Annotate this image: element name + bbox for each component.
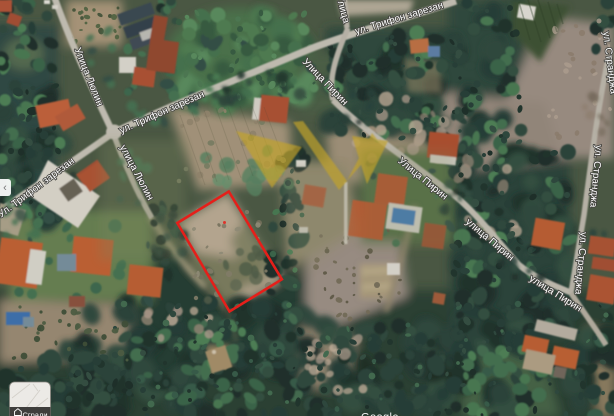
svg-text:Google: Google <box>361 412 399 416</box>
svg-text:‹: ‹ <box>3 182 7 194</box>
svg-text:Сгради: Сгради <box>22 411 47 416</box>
